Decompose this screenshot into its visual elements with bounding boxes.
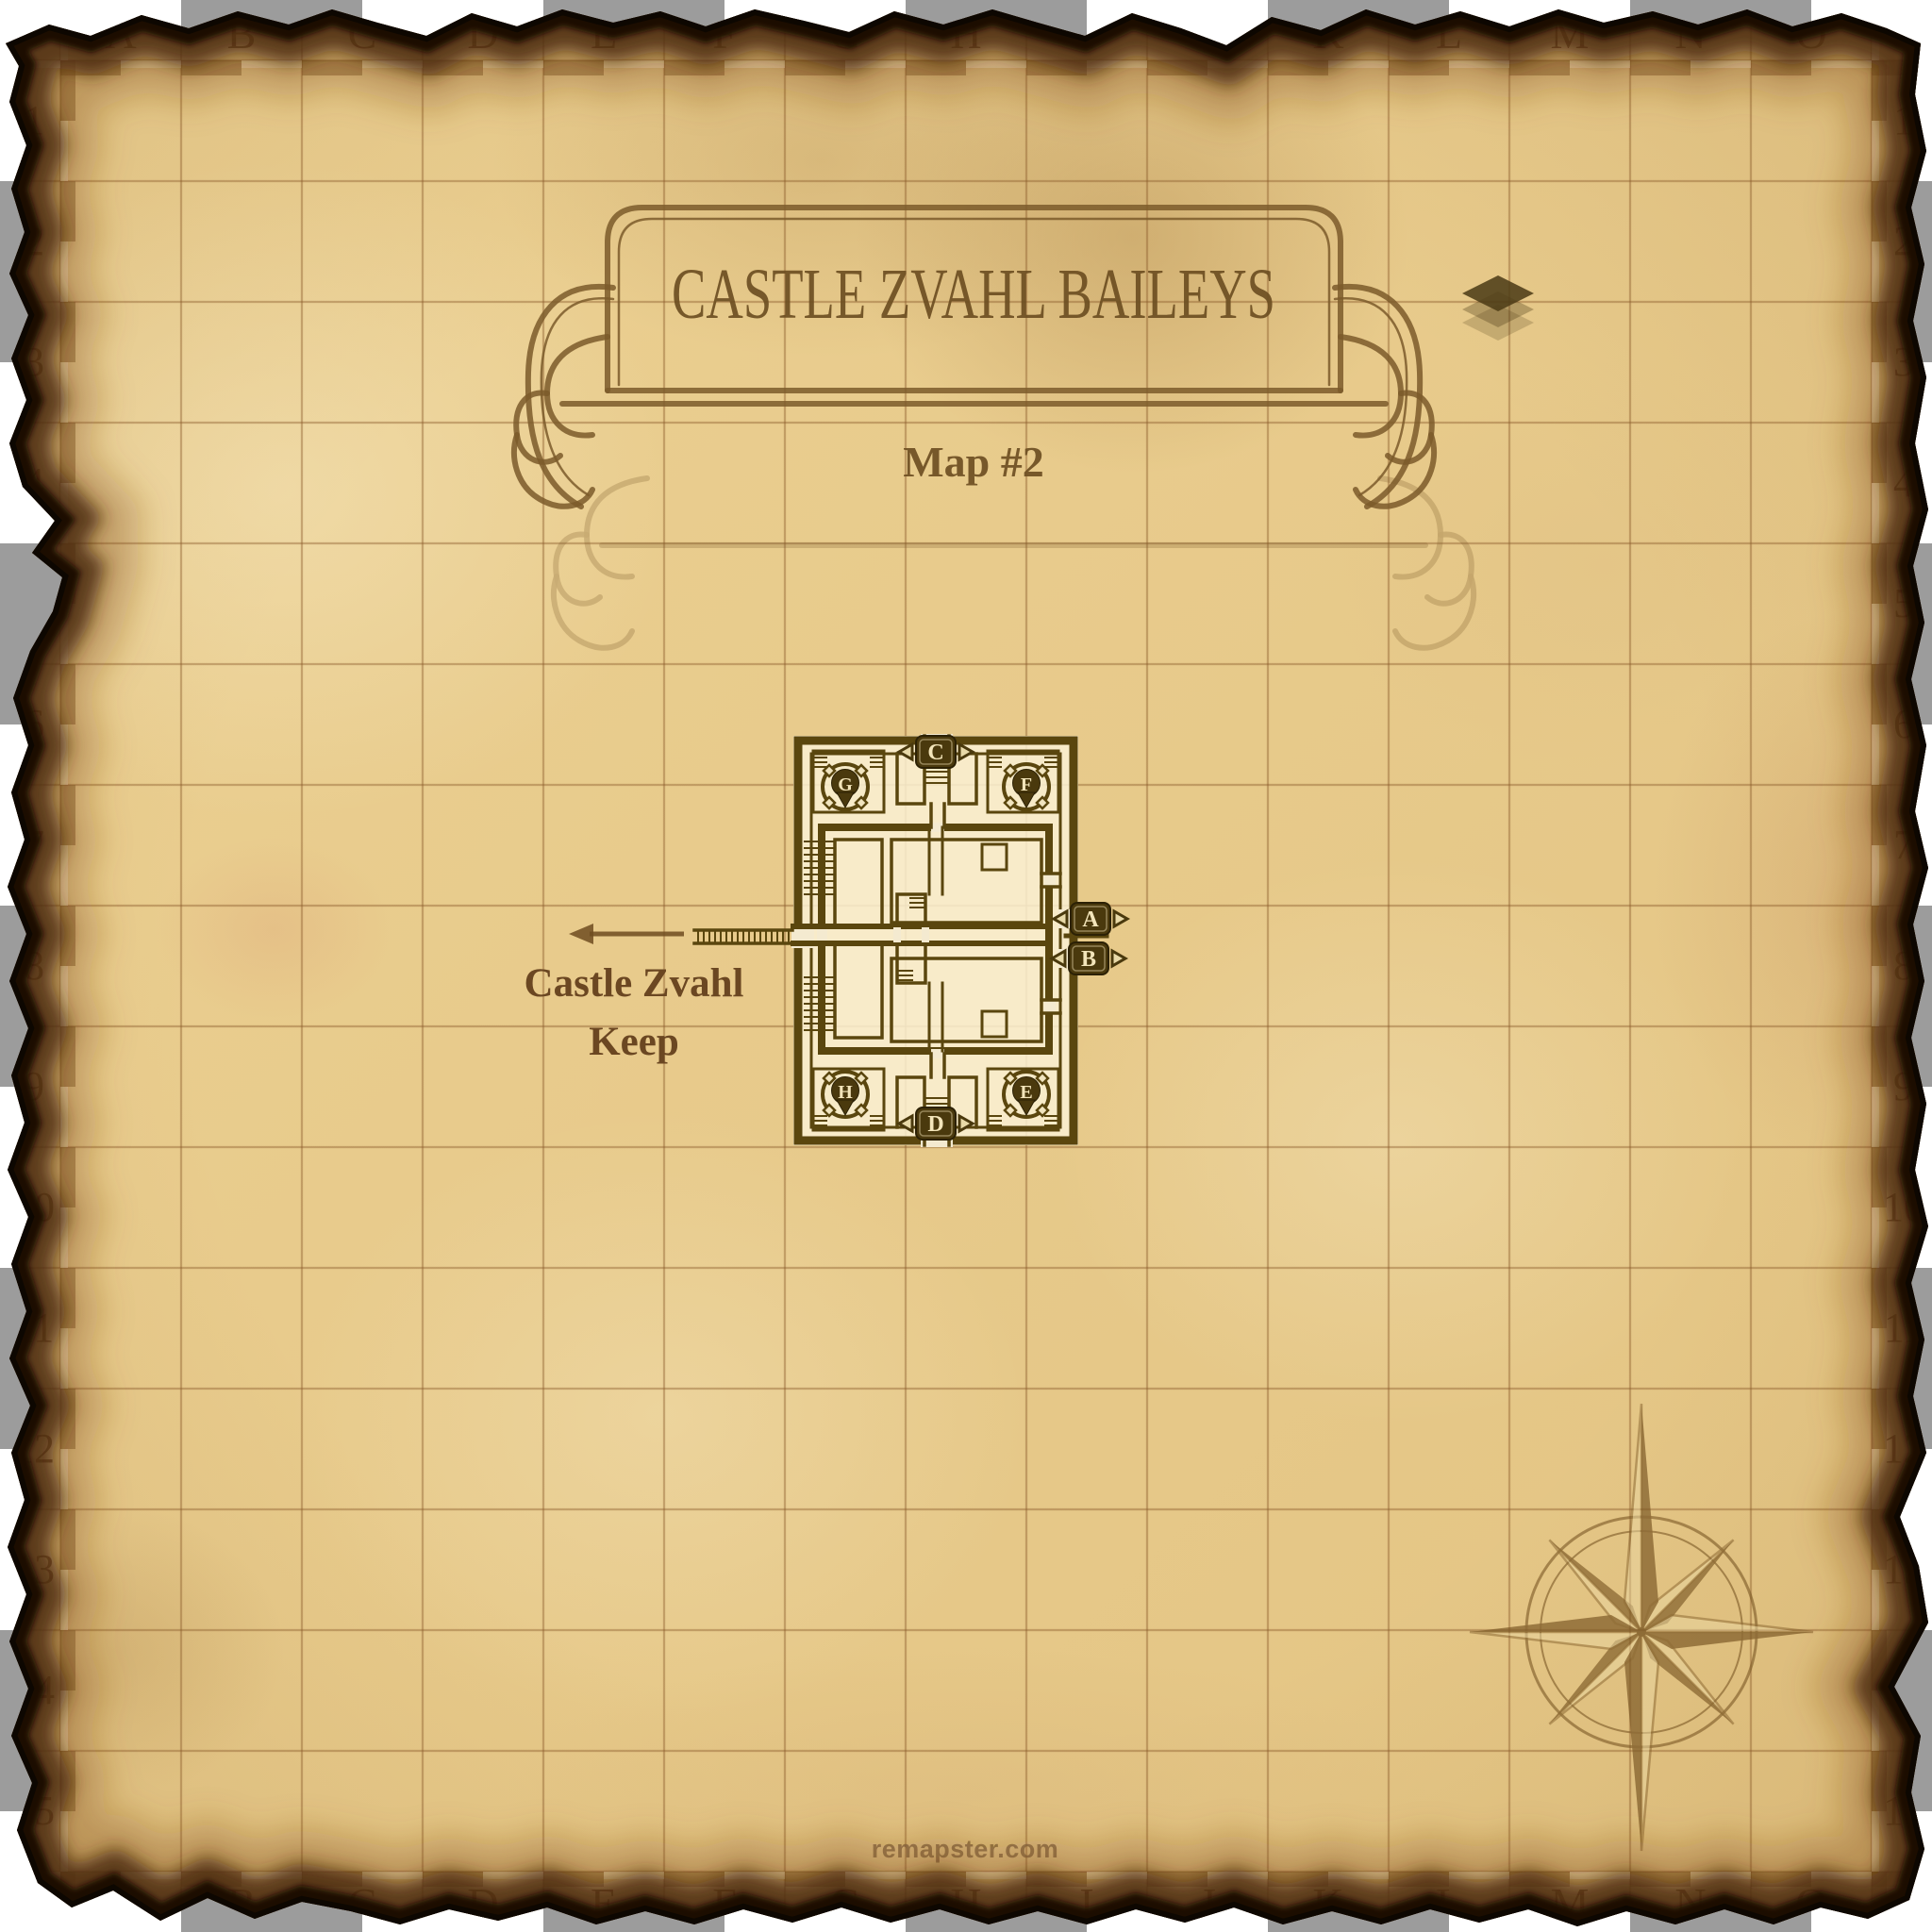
row-label-left-3: 3 xyxy=(6,336,62,389)
ruler-band-top xyxy=(0,60,1932,75)
column-label-bottom-N: N xyxy=(1662,1877,1719,1930)
keep-label: Castle Zvahl Keep xyxy=(398,955,870,1072)
right-arrow-icon xyxy=(1112,951,1125,966)
column-label-bottom-C: C xyxy=(334,1877,391,1930)
column-label-top-N: N xyxy=(1662,8,1719,60)
row-label-right-12: 12 xyxy=(1875,1423,1932,1475)
left-arrow-icon xyxy=(569,924,593,944)
row-label-left-6: 6 xyxy=(6,698,62,751)
row-label-right-4: 4 xyxy=(1875,457,1932,509)
column-label-bottom-K: K xyxy=(1300,1877,1357,1930)
column-label-top-E: E xyxy=(575,8,632,60)
watermark: remapster.com xyxy=(824,1835,1107,1864)
row-label-left-4: 4 xyxy=(6,457,62,509)
svg-text:C: C xyxy=(927,741,943,765)
row-label-right-1: 1 xyxy=(1875,94,1932,147)
row-label-right-2: 2 xyxy=(1875,215,1932,268)
svg-text:H: H xyxy=(838,1082,853,1103)
column-label-bottom-A: A xyxy=(92,1877,149,1930)
column-label-bottom-F: F xyxy=(696,1877,753,1930)
row-label-left-13: 13 xyxy=(6,1543,62,1596)
column-label-bottom-M: M xyxy=(1541,1877,1598,1930)
column-label-bottom-G: G xyxy=(817,1877,874,1930)
row-label-left-8: 8 xyxy=(6,940,62,992)
column-label-top-O: O xyxy=(1783,8,1840,60)
map-subtitle: Map #2 xyxy=(903,438,1044,486)
column-label-bottom-B: B xyxy=(213,1877,270,1930)
column-label-top-I: I xyxy=(1058,8,1115,60)
column-label-top-A: A xyxy=(92,8,149,60)
column-label-top-M: M xyxy=(1541,8,1598,60)
svg-text:B: B xyxy=(1081,947,1096,972)
ruler-band-left xyxy=(60,0,75,1932)
column-label-bottom-D: D xyxy=(455,1877,511,1930)
row-label-right-6: 6 xyxy=(1875,698,1932,751)
row-label-left-5: 5 xyxy=(6,577,62,630)
row-label-left-9: 9 xyxy=(6,1060,62,1113)
row-label-right-11: 11 xyxy=(1875,1302,1932,1355)
column-label-bottom-E: E xyxy=(575,1877,632,1930)
title-banner: CASTLE ZVAHL BAILEYS Map #2 xyxy=(472,175,1509,580)
row-label-right-14: 14 xyxy=(1875,1664,1932,1717)
right-arrow-icon xyxy=(1114,911,1127,926)
map-canvas: AABBCCDDEEFFGGHHIIJJKKLLMMNNOO1122334455… xyxy=(0,0,1932,1932)
row-label-left-11: 11 xyxy=(6,1302,62,1355)
row-label-right-8: 8 xyxy=(1875,940,1932,992)
map-title: CASTLE ZVAHL BAILEYS xyxy=(672,255,1275,334)
row-label-left-10: 10 xyxy=(6,1181,62,1234)
column-label-bottom-O: O xyxy=(1783,1877,1840,1930)
parchment-sheet: AABBCCDDEEFFGGHHIIJJKKLLMMNNOO1122334455… xyxy=(0,0,1932,1932)
column-label-top-F: F xyxy=(696,8,753,60)
row-label-left-12: 12 xyxy=(6,1423,62,1475)
row-label-left-2: 2 xyxy=(6,215,62,268)
row-label-left-1: 1 xyxy=(6,94,62,147)
svg-text:G: G xyxy=(838,774,853,795)
column-label-bottom-J: J xyxy=(1179,1877,1236,1930)
castle-floor-plan: A B C D xyxy=(685,726,1119,1155)
row-label-right-10: 10 xyxy=(1875,1181,1932,1234)
keep-arrow xyxy=(561,910,693,958)
column-label-top-D: D xyxy=(455,8,511,60)
pin-marker-f: F xyxy=(1004,764,1049,809)
keep-label-line2: Keep xyxy=(398,1013,870,1072)
svg-text:D: D xyxy=(927,1112,943,1137)
row-label-left-14: 14 xyxy=(6,1664,62,1717)
row-label-right-3: 3 xyxy=(1875,336,1932,389)
row-label-left-15: 15 xyxy=(6,1785,62,1838)
row-label-right-5: 5 xyxy=(1875,577,1932,630)
row-label-right-15: 15 xyxy=(1875,1785,1932,1838)
row-label-right-7: 7 xyxy=(1875,819,1932,872)
pin-marker-e: E xyxy=(1004,1072,1049,1117)
compass-rose-icon xyxy=(1457,1396,1825,1868)
row-label-right-9: 9 xyxy=(1875,1060,1932,1113)
column-label-bottom-I: I xyxy=(1058,1877,1115,1930)
layers-icon xyxy=(1453,266,1547,351)
pin-marker-g: G xyxy=(823,764,868,809)
column-label-bottom-L: L xyxy=(1421,1877,1477,1930)
row-label-right-13: 13 xyxy=(1875,1543,1932,1596)
pin-marker-h: H xyxy=(823,1072,868,1117)
svg-text:A: A xyxy=(1082,908,1099,932)
column-label-top-L: L xyxy=(1421,8,1477,60)
column-label-top-B: B xyxy=(213,8,270,60)
column-label-top-H: H xyxy=(938,8,994,60)
row-label-left-7: 7 xyxy=(6,819,62,872)
column-label-top-K: K xyxy=(1300,8,1357,60)
column-label-bottom-H: H xyxy=(938,1877,994,1930)
svg-text:F: F xyxy=(1021,774,1032,795)
column-label-top-J: J xyxy=(1179,8,1236,60)
column-label-top-C: C xyxy=(334,8,391,60)
svg-text:E: E xyxy=(1020,1082,1032,1103)
column-label-top-G: G xyxy=(817,8,874,60)
keep-label-line1: Castle Zvahl xyxy=(398,955,870,1013)
